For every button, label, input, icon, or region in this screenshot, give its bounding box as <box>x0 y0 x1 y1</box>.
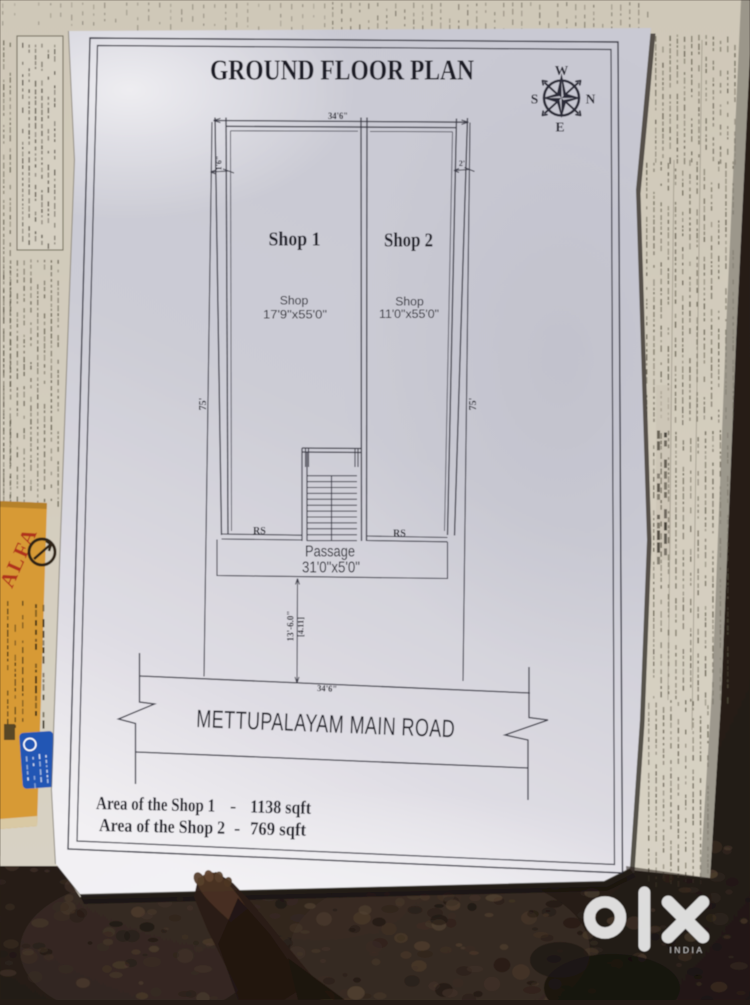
svg-text:769 sqft: 769 sqft <box>250 819 307 840</box>
svg-text:Shop: Shop <box>280 294 309 308</box>
svg-text:1138 sqft: 1138 sqft <box>250 797 312 818</box>
svg-text:13'-6.0": 13'-6.0" <box>286 611 296 642</box>
svg-text:11'0"x55'0": 11'0"x55'0" <box>379 307 439 321</box>
svg-text:N: N <box>586 92 596 107</box>
svg-text:Shop 1: Shop 1 <box>269 230 321 251</box>
svg-text:-: - <box>230 797 237 817</box>
svg-text:-: - <box>234 819 241 839</box>
svg-text:RS: RS <box>253 526 266 537</box>
svg-text:Shop 2: Shop 2 <box>384 231 433 252</box>
svg-text:[4.11]: [4.11] <box>296 617 306 637</box>
svg-text:17'9"x55'0": 17'9"x55'0" <box>263 308 327 322</box>
svg-text:1'6": 1'6" <box>215 156 224 171</box>
svg-text:S: S <box>531 92 539 107</box>
svg-text:E: E <box>555 120 564 135</box>
svg-text:GROUND FLOOR PLAN: GROUND FLOOR PLAN <box>210 56 474 87</box>
svg-text:75': 75' <box>198 397 209 410</box>
svg-text:75': 75' <box>468 397 479 410</box>
svg-text:34'6": 34'6" <box>317 683 337 694</box>
svg-text:34'6": 34'6" <box>328 112 348 122</box>
svg-text:W: W <box>555 63 569 78</box>
svg-text:Area of the Shop 1: Area of the Shop 1 <box>96 794 215 817</box>
svg-text:Area of the Shop 2: Area of the Shop 2 <box>99 816 225 839</box>
svg-text:31'0"x5'0": 31'0"x5'0" <box>302 560 360 577</box>
svg-text:Passage: Passage <box>305 544 355 561</box>
svg-text:INDIA: INDIA <box>669 945 704 955</box>
svg-text:RS: RS <box>393 529 406 540</box>
svg-text:2': 2' <box>459 159 465 168</box>
